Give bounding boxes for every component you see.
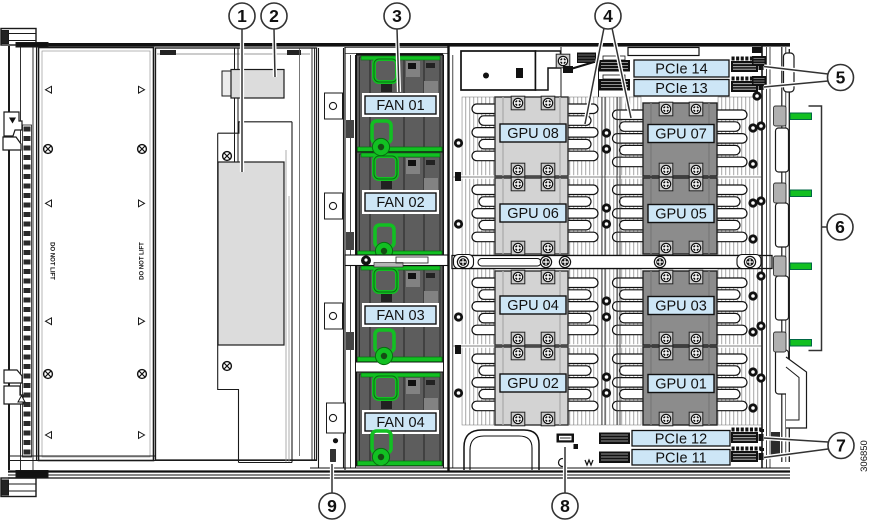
svg-text:GPU 02: GPU 02 (507, 376, 559, 392)
svg-text:7: 7 (836, 436, 846, 456)
svg-text:FAN 01: FAN 01 (376, 98, 424, 114)
svg-text:5: 5 (836, 68, 846, 88)
svg-text:PCIe 11: PCIe 11 (655, 450, 706, 466)
svg-text:2: 2 (269, 6, 279, 26)
svg-text:GPU 01: GPU 01 (655, 377, 707, 393)
svg-text:FAN 03: FAN 03 (376, 308, 424, 324)
svg-text:1: 1 (237, 6, 247, 26)
svg-text:GPU 06: GPU 06 (507, 206, 559, 222)
svg-text:GPU 07: GPU 07 (655, 127, 707, 143)
svg-text:8: 8 (560, 496, 570, 516)
svg-text:4: 4 (603, 6, 613, 26)
svg-text:6: 6 (835, 217, 845, 237)
svg-text:GPU 03: GPU 03 (655, 299, 707, 315)
svg-text:9: 9 (327, 496, 337, 516)
svg-text:DO NOT LIFT: DO NOT LIFT (140, 242, 146, 280)
svg-text:PCIe 14: PCIe 14 (655, 62, 707, 78)
svg-text:DO NOT LIFT: DO NOT LIFT (49, 242, 55, 280)
svg-text:FAN 04: FAN 04 (376, 415, 424, 431)
svg-text:FAN 02: FAN 02 (376, 195, 424, 211)
svg-text:GPU 05: GPU 05 (655, 207, 707, 223)
svg-text:306850: 306850 (859, 440, 870, 472)
svg-text:PCIe 12: PCIe 12 (655, 431, 707, 447)
svg-text:GPU 08: GPU 08 (507, 126, 559, 142)
svg-text:PCIe 13: PCIe 13 (655, 81, 707, 97)
svg-text:3: 3 (392, 6, 402, 26)
svg-text:GPU 04: GPU 04 (507, 298, 559, 314)
